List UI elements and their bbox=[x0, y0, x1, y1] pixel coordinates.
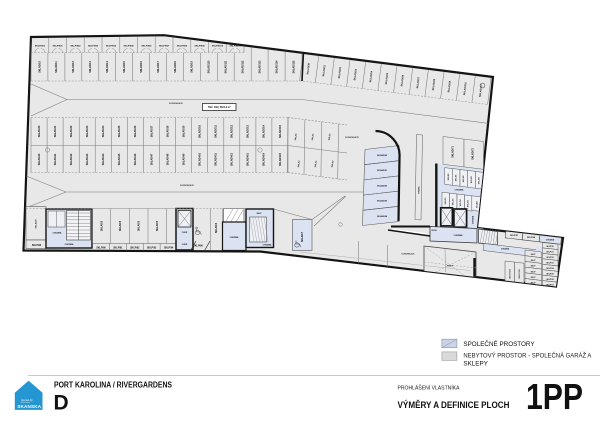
svg-text:VÝMĚRY A DEFINICE PLOCH: VÝMĚRY A DEFINICE PLOCH bbox=[398, 399, 510, 411]
svg-text:SKLAD/48: SKLAD/48 bbox=[166, 153, 169, 165]
svg-text:CHOD: CHOD bbox=[182, 232, 188, 234]
svg-text:CHODBA: CHODBA bbox=[501, 248, 510, 251]
svg-text:SKLAD/49: SKLAD/49 bbox=[182, 153, 185, 165]
svg-text:SKLAD/5: SKLAD/5 bbox=[119, 220, 122, 231]
svg-text:SKLP/14: SKLP/14 bbox=[546, 267, 553, 270]
svg-text:SKLAD/19: SKLAD/19 bbox=[191, 61, 194, 73]
svg-text:PORT KAROLINA / RIVERGARDENS: PORT KAROLINA / RIVERGARDENS bbox=[54, 381, 173, 390]
svg-text:SKLP/90: SKLP/90 bbox=[96, 248, 106, 250]
svg-text:SKLAD/44: SKLAD/44 bbox=[102, 153, 105, 165]
svg-text:SKLP/804: SKLP/804 bbox=[106, 44, 117, 47]
svg-text:SKLP/16: SKLP/16 bbox=[546, 279, 553, 281]
svg-text:SKLAD/10: SKLAD/10 bbox=[38, 61, 41, 73]
svg-text:SKLAD/414: SKLAD/414 bbox=[263, 152, 266, 166]
svg-text:SKLP/111: SKLP/111 bbox=[519, 268, 521, 278]
svg-text:SKLP: SKLP bbox=[531, 254, 537, 256]
svg-text:SKLAD/315: SKLAD/315 bbox=[279, 124, 282, 138]
svg-text:PROHLÁŠENÍ VLASTNÍKA: PROHLÁŠENÍ VLASTNÍKA bbox=[398, 385, 460, 392]
svg-text:SKLP/92: SKLP/92 bbox=[130, 248, 140, 250]
svg-text:SKLP/110: SKLP/110 bbox=[510, 268, 512, 278]
svg-text:SKLAD/72: SKLAD/72 bbox=[472, 148, 475, 160]
svg-text:SKL/80: SKL/80 bbox=[448, 173, 450, 181]
svg-text:SKL/82: SKL/82 bbox=[463, 175, 465, 183]
svg-text:D: D bbox=[54, 392, 69, 415]
svg-text:SKL/81: SKL/81 bbox=[456, 174, 458, 182]
svg-text:SKLAD/45: SKLAD/45 bbox=[118, 153, 121, 165]
svg-text:SKLAD/37: SKLAD/37 bbox=[150, 125, 153, 137]
svg-text:SPOLEČNÉ PROSTORY: SPOLEČNÉ PROSTORY bbox=[463, 339, 535, 348]
svg-text:SKLAD/310: SKLAD/310 bbox=[199, 124, 202, 138]
svg-text:SKLAD/5: SKLAD/5 bbox=[156, 220, 159, 231]
svg-text:SKLP/802: SKLP/802 bbox=[70, 45, 81, 47]
svg-text:SKLAD/14: SKLAD/14 bbox=[106, 61, 109, 73]
svg-text:SKLAD/410: SKLAD/410 bbox=[199, 152, 202, 166]
svg-text:SKLAD/47: SKLAD/47 bbox=[150, 153, 153, 165]
svg-text:SKLAD/39: SKLAD/39 bbox=[182, 125, 185, 137]
svg-text:CHOD: CHOD bbox=[431, 230, 437, 232]
svg-text:SKLAD/84: SKLAD/84 bbox=[377, 215, 388, 218]
svg-text:SKLAD/115: SKLAD/115 bbox=[292, 60, 295, 73]
svg-text:KOMUNIKACE: KOMUNIKACE bbox=[345, 136, 359, 139]
svg-text:SKLP/12: SKLP/12 bbox=[546, 257, 553, 259]
svg-text:SKLP: SKLP bbox=[531, 277, 537, 279]
svg-text:CHODBA: CHODBA bbox=[65, 243, 74, 246]
svg-text:SKL/84: SKL/84 bbox=[478, 177, 481, 185]
svg-text:SKLAD/415: SKLAD/415 bbox=[279, 152, 282, 166]
svg-text:SKLP: SKLP bbox=[531, 260, 537, 262]
svg-text:SKLAD/11: SKLAD/11 bbox=[55, 61, 58, 73]
svg-text:SKLAD/9: SKLAD/9 bbox=[35, 219, 38, 229]
svg-text:SKLP/11: SKLP/11 bbox=[546, 252, 553, 254]
svg-text:SKLP/803: SKLP/803 bbox=[88, 45, 99, 47]
svg-text:SKLP/10: SKLP/10 bbox=[546, 246, 553, 248]
svg-text:SKL/90: SKL/90 bbox=[445, 197, 447, 205]
svg-text:SKLP/800: SKLP/800 bbox=[35, 45, 46, 47]
svg-text:CHODBA: CHODBA bbox=[455, 189, 464, 192]
svg-text:SKLAD/15: SKLAD/15 bbox=[123, 61, 126, 73]
svg-text:SKLAD/311: SKLAD/311 bbox=[215, 124, 218, 137]
svg-text:SKL/83: SKL/83 bbox=[471, 176, 473, 184]
svg-text:RVZT: RVZT bbox=[447, 266, 453, 268]
svg-text:SKLAD/6: SKLAD/6 bbox=[215, 222, 218, 233]
svg-text:RAMPA: RAMPA bbox=[417, 186, 420, 194]
svg-text:CHODBA: CHODBA bbox=[230, 236, 239, 239]
svg-text:SKANSKA: SKANSKA bbox=[17, 404, 42, 409]
svg-text:SKLP/93: SKLP/93 bbox=[147, 248, 157, 250]
svg-text:SKLAD/413: SKLAD/413 bbox=[247, 152, 250, 166]
svg-text:SKLAD/33: SKLAD/33 bbox=[86, 125, 89, 137]
svg-text:SKLP/805: SKLP/805 bbox=[124, 45, 135, 47]
svg-text:SKLP/808: SKLP/808 bbox=[177, 45, 188, 47]
svg-text:SKLAD/112: SKLAD/112 bbox=[242, 60, 245, 73]
svg-text:SKLAD/411: SKLAD/411 bbox=[215, 152, 218, 165]
svg-text:Homes by: Homes by bbox=[21, 398, 33, 402]
svg-text:SKLAD/41: SKLAD/41 bbox=[54, 153, 57, 165]
svg-text:SKL/91: SKL/91 bbox=[453, 198, 455, 206]
svg-text:SKLAD/36: SKLAD/36 bbox=[134, 125, 137, 137]
svg-text:CHODBA: CHODBA bbox=[53, 232, 62, 235]
svg-text:SKLP: SKLP bbox=[531, 266, 537, 268]
svg-text:SKLAD/34: SKLAD/34 bbox=[102, 125, 105, 137]
svg-text:SKLAD/81: SKLAD/81 bbox=[377, 169, 388, 172]
svg-text:CHODBA: CHODBA bbox=[263, 244, 272, 247]
svg-text:SKLP/8010: SKLP/8010 bbox=[212, 45, 224, 47]
svg-text:SKLP/97: SKLP/97 bbox=[510, 235, 519, 237]
svg-text:SKLP/13: SKLP/13 bbox=[546, 263, 553, 265]
svg-text:SKLAD/18: SKLAD/18 bbox=[174, 61, 177, 73]
svg-text:SKLAD/114: SKLAD/114 bbox=[275, 60, 278, 73]
svg-text:SKLAD/314: SKLAD/314 bbox=[263, 124, 266, 138]
svg-text:CHODBA: CHODBA bbox=[472, 215, 475, 224]
svg-text:SKLAD/412: SKLAD/412 bbox=[231, 152, 234, 166]
svg-text:SKLAD/16: SKLAD/16 bbox=[140, 61, 143, 73]
svg-text:CHODBA: CHODBA bbox=[453, 234, 463, 237]
svg-text:SKLAD/83: SKLAD/83 bbox=[377, 200, 388, 203]
svg-text:KOMUNIKACE: KOMUNIKACE bbox=[401, 253, 415, 256]
svg-text:SKLAD/80: SKLAD/80 bbox=[377, 154, 388, 157]
svg-text:SKLAD/12: SKLAD/12 bbox=[72, 61, 75, 73]
svg-text:SKLP/801: SKLP/801 bbox=[53, 45, 64, 47]
svg-text:SKLAD/312: SKLAD/312 bbox=[231, 124, 234, 138]
svg-text:SKLAD/113: SKLAD/113 bbox=[259, 60, 262, 73]
svg-text:SKLP/8011: SKLP/8011 bbox=[230, 45, 242, 47]
svg-text:SKLP/809: SKLP/809 bbox=[195, 45, 206, 47]
svg-text:SKLAD/82: SKLAD/82 bbox=[377, 184, 388, 187]
svg-text:SKLP/806: SKLP/806 bbox=[141, 45, 152, 47]
svg-text:SKLAD/31: SKLAD/31 bbox=[54, 125, 57, 137]
svg-text:SKLEPY: SKLEPY bbox=[463, 360, 488, 367]
svg-text:SKLP: SKLP bbox=[531, 271, 537, 273]
svg-text:1PP: 1PP bbox=[526, 376, 583, 417]
svg-text:SKLAD/5: SKLAD/5 bbox=[138, 220, 141, 231]
svg-text:KOMUNIKACE: KOMUNIKACE bbox=[169, 102, 183, 105]
svg-text:SKLP/96: SKLP/96 bbox=[193, 246, 203, 248]
svg-text:769 / 169 | 5321,3 m²: 769 / 169 | 5321,3 m² bbox=[208, 105, 231, 109]
svg-text:SKLP/807: SKLP/807 bbox=[159, 45, 170, 47]
svg-text:SKLAD/46: SKLAD/46 bbox=[134, 153, 137, 165]
svg-text:SKL/92: SKL/92 bbox=[460, 199, 462, 207]
svg-text:SKLAD/5: SKLAD/5 bbox=[100, 220, 103, 231]
svg-text:KOMUNIKACE: KOMUNIKACE bbox=[180, 184, 194, 187]
svg-text:SKLAD/40: SKLAD/40 bbox=[38, 153, 41, 165]
svg-text:SKLAD/313: SKLAD/313 bbox=[247, 124, 250, 138]
svg-text:SKL/93: SKL/93 bbox=[468, 199, 470, 207]
svg-text:SKLAD/42: SKLAD/42 bbox=[70, 153, 73, 165]
svg-text:SKLAD/43: SKLAD/43 bbox=[86, 153, 89, 165]
svg-text:SKLP/94: SKLP/94 bbox=[164, 247, 174, 250]
svg-text:SKLP/15: SKLP/15 bbox=[546, 273, 553, 275]
svg-text:NEBYTOVÝ PROSTOR - SPOLEČNÁ GA: NEBYTOVÝ PROSTOR - SPOLEČNÁ GARÁŽ A bbox=[463, 351, 592, 360]
svg-text:SKLAD/30: SKLAD/30 bbox=[38, 125, 41, 137]
svg-text:SKLP/90: SKLP/90 bbox=[32, 245, 42, 247]
svg-text:SKLP/91: SKLP/91 bbox=[113, 248, 123, 250]
svg-text:SKLAD/17: SKLAD/17 bbox=[157, 61, 160, 73]
svg-text:SKLAD/71: SKLAD/71 bbox=[452, 146, 455, 158]
svg-text:SKLAD/110: SKLAD/110 bbox=[208, 60, 211, 73]
svg-text:CHODBA: CHODBA bbox=[546, 239, 555, 242]
svg-text:SKLAD/35: SKLAD/35 bbox=[118, 125, 121, 137]
svg-text:SKLAD: SKLAD bbox=[476, 201, 479, 208]
svg-text:SKLP: SKLP bbox=[256, 213, 262, 215]
svg-text:SKLAD/7: SKLAD/7 bbox=[301, 231, 304, 242]
svg-text:CHOD: CHOD bbox=[182, 244, 188, 246]
svg-text:SKLAD/32: SKLAD/32 bbox=[70, 125, 73, 137]
svg-text:SKLP/98: SKLP/98 bbox=[527, 237, 536, 239]
svg-text:SKLAD/111: SKLAD/111 bbox=[225, 60, 228, 73]
svg-text:SKLAD/13: SKLAD/13 bbox=[89, 61, 92, 73]
svg-text:SKLAD/38: SKLAD/38 bbox=[166, 125, 169, 137]
